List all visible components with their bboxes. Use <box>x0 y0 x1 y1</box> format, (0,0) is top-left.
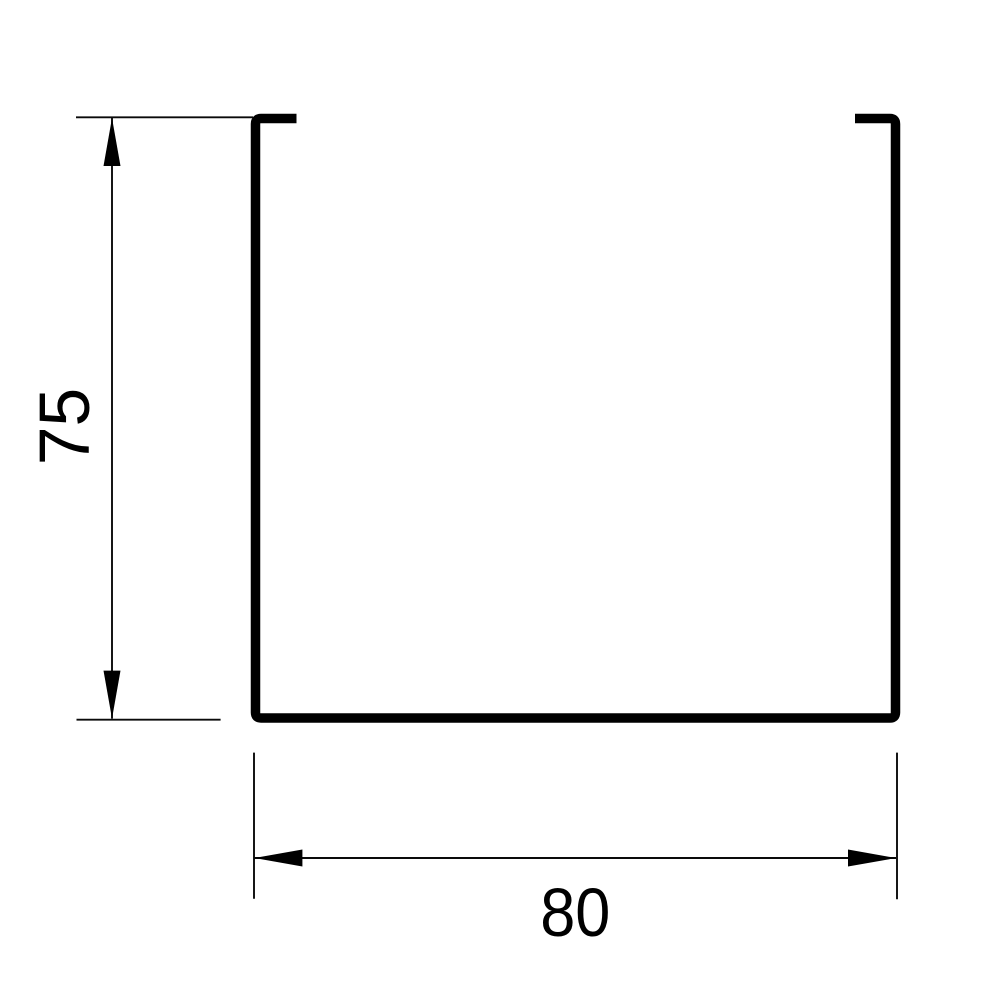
svg-text:80: 80 <box>540 874 610 951</box>
svg-text:75: 75 <box>24 388 104 465</box>
